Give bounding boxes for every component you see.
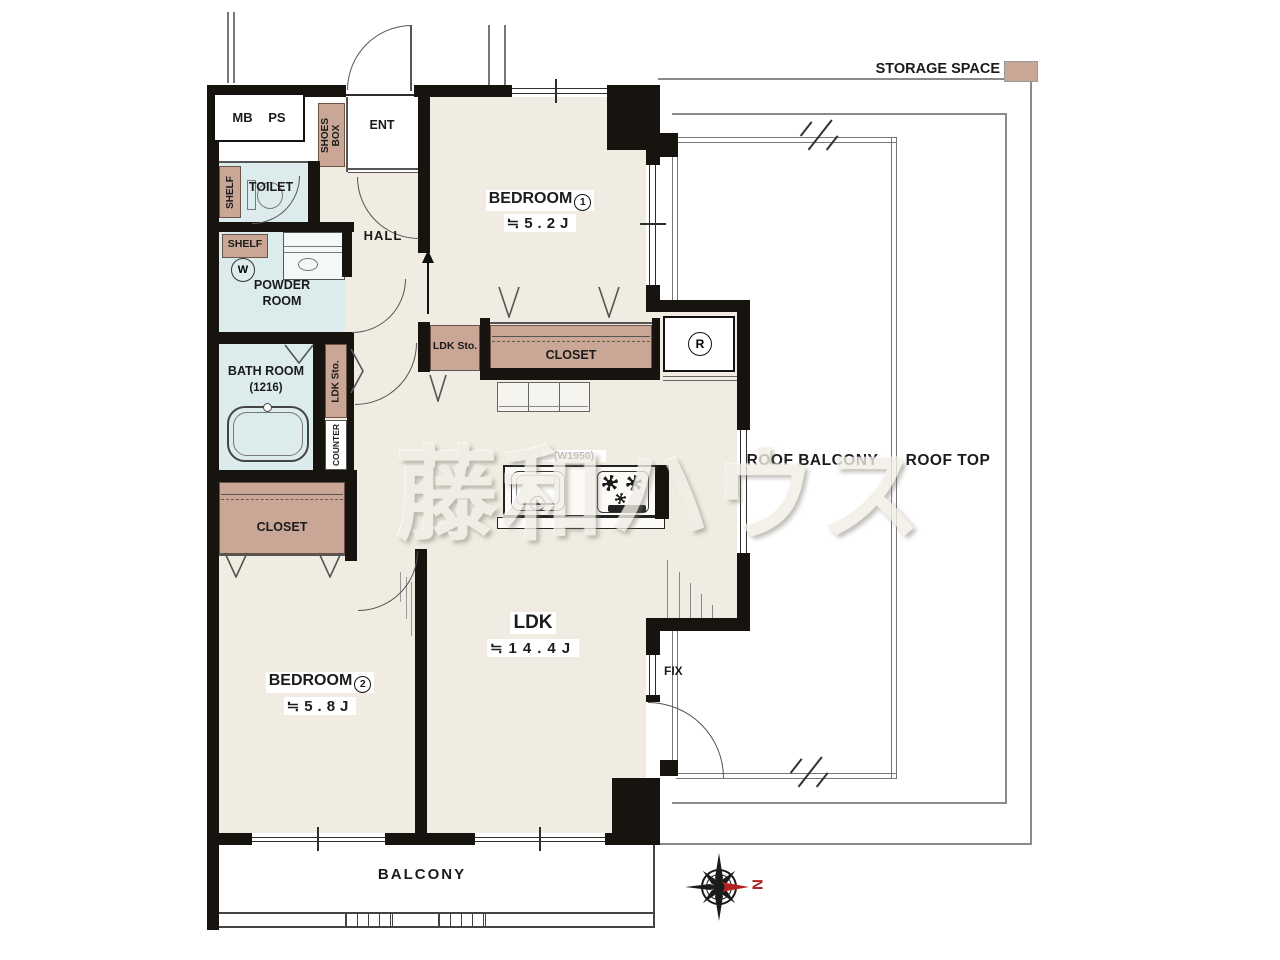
window-line [649, 655, 650, 695]
closet-bedroom2-label: CLOSET [232, 520, 332, 534]
wall [737, 300, 750, 430]
roof-balcony-railing [672, 157, 678, 302]
bedroom1-label: BEDROOM1 [486, 190, 595, 211]
hall-label: HALL [352, 228, 414, 243]
roof-top-outline [658, 78, 1032, 80]
wall [646, 695, 660, 702]
balcony-hatch [345, 913, 393, 927]
meter-box-label: MB PS [213, 93, 305, 142]
ldk-sto-bedroom-label: LDK Sto. [430, 340, 480, 352]
wall [418, 322, 430, 372]
entrance-door-arc [347, 25, 412, 90]
bathtub-drain-icon [263, 403, 272, 412]
entrance-step-line [348, 172, 418, 174]
cabinet-divider [559, 382, 560, 412]
closet-folding-door-icon [598, 286, 620, 318]
entry-arrow [427, 262, 429, 314]
entrance-label: ENT [352, 118, 412, 132]
wall [612, 778, 660, 845]
window-line [740, 430, 741, 553]
storage-space-legend-label: STORAGE SPACE [845, 61, 1000, 77]
balcony-edge [219, 912, 655, 914]
burner-icon [602, 475, 618, 491]
balcony-label: BALCONY [368, 866, 476, 883]
entrance-floor [348, 97, 418, 172]
duct-line [504, 25, 506, 85]
roof-top-label: ROOF TOP [900, 452, 996, 470]
window-mullion [539, 827, 541, 851]
roof-balcony-outline [672, 113, 1007, 115]
closet-hanger-rail [221, 499, 343, 500]
closet-bedroom2 [219, 482, 345, 554]
party-wall-line [227, 12, 229, 83]
closet-bedroom1-label: CLOSET [521, 348, 621, 362]
dining-window [737, 430, 750, 553]
closet-folding-door-icon [224, 552, 248, 578]
bath-folding-door-icon [284, 344, 314, 364]
bedroom1-window [512, 85, 607, 97]
bedroom1-name: BEDROOM [489, 190, 573, 207]
bath-room-label: BATH ROOM [216, 364, 316, 378]
ldk-sto-hall-label: LDK Sto. [331, 360, 342, 402]
ldk-label: LDK [510, 612, 555, 634]
closet-inner-line [221, 494, 343, 495]
entry-arrow-head [422, 250, 434, 263]
step-hatch [701, 594, 702, 618]
bedroom2-name: BEDROOM [269, 672, 353, 689]
storage-door-chevron-icon [349, 348, 365, 394]
step-hatch [667, 560, 668, 618]
vanity-basin [298, 258, 318, 271]
entrance-door-leaf [410, 25, 412, 91]
step-hatch [690, 583, 691, 618]
roof-top-outline [658, 843, 1032, 845]
party-wall-line [233, 12, 235, 83]
counter-label: COUNTER [331, 424, 341, 466]
wall [342, 232, 352, 277]
railing-break-mark [787, 753, 833, 795]
kitchen-cabinet [497, 382, 590, 412]
toilet-label: TOILET [240, 180, 302, 194]
closet-front-line [490, 322, 652, 324]
north-label: N [749, 876, 766, 894]
roof-balcony-outline [672, 802, 1007, 804]
powder-room-label: POWDER ROOM [238, 278, 326, 309]
storage-front-line [430, 370, 480, 371]
floor-plan: STORAGE SPACE [0, 0, 1280, 960]
balcony-edge [653, 845, 655, 928]
wall [207, 222, 354, 232]
partition-line [346, 97, 348, 172]
balcony-hatch [438, 913, 486, 927]
wall [646, 300, 750, 312]
threshold-line [346, 94, 414, 96]
storage-space-legend-swatch [1004, 61, 1038, 82]
window-mullion [317, 827, 319, 851]
wall [418, 97, 430, 253]
bedroom2-label: BEDROOM2 [266, 672, 375, 693]
wall [207, 470, 357, 482]
ldk-sto-hall-label-wrap: LDK Sto. [325, 344, 347, 418]
burner-icon [615, 493, 626, 504]
wall [488, 368, 660, 380]
step-hatch [679, 572, 680, 618]
bedroom1-number: 1 [574, 194, 591, 211]
wall [737, 553, 750, 618]
balcony-edge [219, 926, 655, 928]
bathtub-inner [233, 412, 303, 456]
compass-icon [683, 851, 755, 923]
kitchen-width-label: (W1950) [542, 450, 606, 462]
wall [646, 618, 750, 631]
grill-icon [608, 505, 646, 512]
roof-balcony-outline [1005, 113, 1007, 804]
ledge-line [663, 380, 737, 381]
window-mullion [555, 79, 557, 103]
burner-icon [626, 475, 642, 491]
window-line [655, 165, 656, 285]
ldk-size: ≒14.4J [487, 639, 579, 657]
wall [646, 85, 660, 165]
counter-label-wrap: COUNTER [325, 420, 347, 470]
window-line [512, 93, 607, 94]
closet-inner-line [492, 336, 650, 337]
counter-base [497, 517, 665, 529]
duct-line [488, 25, 490, 85]
powder-shelf-label: SHELF [222, 238, 268, 250]
bedroom2-number: 2 [354, 676, 371, 693]
wall [308, 161, 320, 222]
vanity-line [283, 246, 345, 247]
bedroom1-size: ≒5.2J [504, 214, 577, 232]
window-line [649, 165, 650, 285]
wall [646, 631, 660, 655]
closet-hanger-rail [492, 341, 650, 342]
storage-folding-door-icon [429, 374, 447, 402]
roof-balcony-railing [676, 137, 897, 143]
window-line [655, 655, 656, 695]
bedroom2-window [252, 833, 385, 845]
wall [345, 470, 357, 561]
roof-balcony-label: ROOF BALCONY [735, 452, 890, 470]
window-line [252, 837, 385, 838]
bedroom1-label-group: BEDROOM1 ≒5.2J [460, 190, 620, 233]
shoes-box-label: SHOES BOX [321, 117, 342, 152]
toilet-shelf-label-wrap: SHELF [219, 166, 241, 218]
bedroom2-label-group: BEDROOM2 ≒5.8J [240, 672, 400, 716]
wall [207, 332, 354, 344]
refrigerator-symbol: R [688, 332, 712, 356]
ledge-line [663, 376, 737, 377]
cabinet-divider [528, 382, 529, 412]
wall [207, 85, 219, 930]
window-line [746, 430, 747, 553]
ldk-label-group: LDK ≒14.4J [473, 612, 593, 658]
counter-end-wall [655, 465, 669, 519]
window-line [252, 841, 385, 842]
wall [415, 561, 427, 833]
vanity-line [283, 252, 345, 253]
closet-folding-door-icon [498, 286, 520, 318]
window-mullion [640, 223, 666, 225]
closet-folding-door-icon [318, 552, 342, 578]
faucet-handle [522, 503, 554, 505]
shoes-box-label-wrap: SHOES BOX [318, 103, 345, 167]
window-line [512, 88, 607, 89]
bedroom2-size: ≒5.8J [284, 697, 357, 715]
entrance-step-line [348, 168, 418, 170]
vanity [283, 232, 345, 280]
roof-balcony-door-arc [648, 702, 724, 778]
fix-window-label: FIX [664, 664, 700, 678]
roof-top-outline [1030, 78, 1032, 845]
railing-break-mark [797, 116, 843, 158]
roof-balcony-railing [891, 137, 897, 779]
step-hatch [712, 605, 713, 618]
wall [660, 133, 678, 157]
toilet-shelf-label: SHELF [225, 176, 236, 209]
partition-line [219, 161, 308, 163]
cabinet-line [499, 406, 588, 407]
door-swing-hatch [411, 582, 412, 636]
bath-room-size: (1216) [216, 382, 316, 394]
wall [313, 344, 325, 470]
